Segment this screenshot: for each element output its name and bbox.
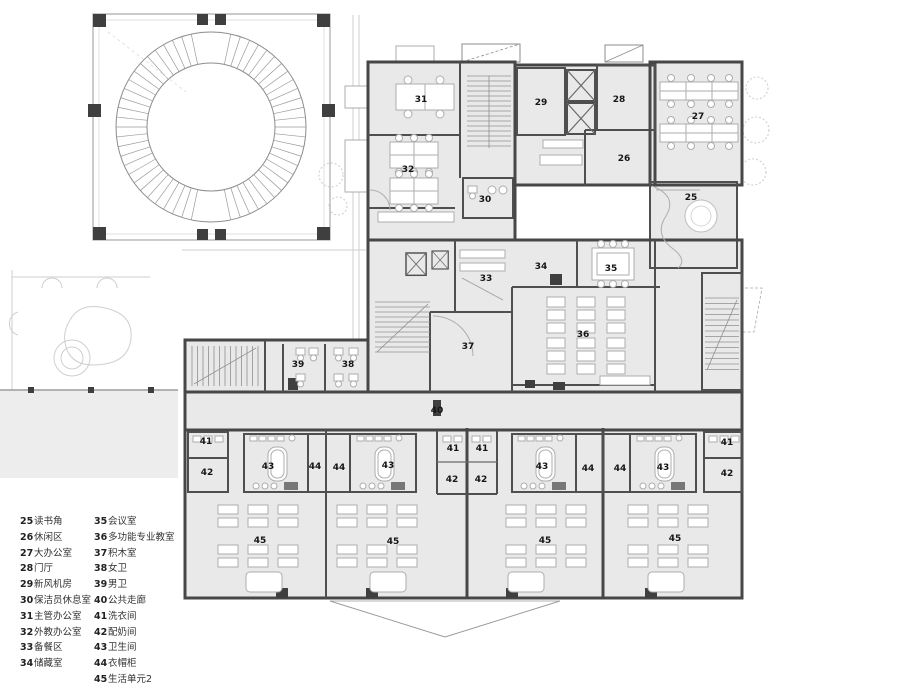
room-label: 39 bbox=[292, 360, 305, 370]
room-label: 29 bbox=[535, 98, 548, 108]
room-label: 45 bbox=[669, 534, 682, 544]
legend-num: 38 bbox=[94, 561, 108, 577]
legend-item: 31主管办公室 bbox=[20, 609, 91, 625]
room-label: 45 bbox=[254, 536, 267, 546]
legend-column-right: 35会议室 36多功能专业教室 37积木室 38女卫 39男卫 40公共走廊 4… bbox=[94, 514, 175, 688]
legend-item: 36多功能专业教室 bbox=[94, 530, 175, 546]
legend-num: 39 bbox=[94, 577, 108, 593]
legend-num: 27 bbox=[20, 546, 34, 562]
legend-item: 42配奶间 bbox=[94, 625, 175, 641]
room-label: 44 bbox=[309, 462, 322, 472]
legend-num: 41 bbox=[94, 609, 108, 625]
legend-num: 28 bbox=[20, 561, 34, 577]
room-label: 40 bbox=[431, 406, 444, 416]
legend-column-left: 25读书角 26休闲区 27大办公室 28门厅 29新风机房 30保洁员休息室 … bbox=[20, 514, 91, 672]
legend-num: 36 bbox=[94, 530, 108, 546]
room-label: 41 bbox=[200, 437, 213, 447]
room-label: 42 bbox=[446, 475, 459, 485]
legend-num: 37 bbox=[94, 546, 108, 562]
legend-item: 30保洁员休息室 bbox=[20, 593, 91, 609]
room-label: 42 bbox=[201, 468, 214, 478]
legend-item: 27大办公室 bbox=[20, 546, 91, 562]
legend-num: 32 bbox=[20, 625, 34, 641]
legend-num: 42 bbox=[94, 625, 108, 641]
room-label: 43 bbox=[536, 462, 549, 472]
legend-item: 37积木室 bbox=[94, 546, 175, 562]
legend-item: 28门厅 bbox=[20, 561, 91, 577]
room-label: 43 bbox=[657, 463, 670, 473]
legend-num: 31 bbox=[20, 609, 34, 625]
room-label: 32 bbox=[402, 165, 415, 175]
room-label: 31 bbox=[415, 95, 428, 105]
legend-label: 主管办公室 bbox=[34, 611, 82, 622]
legend-label: 衣帽柜 bbox=[108, 658, 137, 669]
legend-num: 33 bbox=[20, 640, 34, 656]
room-label: 25 bbox=[685, 193, 698, 203]
room-label: 35 bbox=[605, 264, 618, 274]
legend-item: 45生活单元2 bbox=[94, 672, 175, 688]
room-label: 42 bbox=[721, 469, 734, 479]
legend-num: 43 bbox=[94, 640, 108, 656]
legend-item: 43卫生间 bbox=[94, 640, 175, 656]
room-label: 44 bbox=[614, 464, 627, 474]
ring-structure bbox=[88, 14, 335, 240]
legend-label: 洗衣间 bbox=[108, 611, 137, 622]
legend-item: 41洗衣间 bbox=[94, 609, 175, 625]
legend-label: 男卫 bbox=[108, 579, 127, 590]
legend-num: 34 bbox=[20, 656, 34, 672]
legend-label: 女卫 bbox=[108, 563, 127, 574]
legend-label: 休闲区 bbox=[34, 532, 63, 543]
legend-label: 大办公室 bbox=[34, 548, 72, 559]
legend-item: 38女卫 bbox=[94, 561, 175, 577]
legend-item: 35会议室 bbox=[94, 514, 175, 530]
room-label: 30 bbox=[479, 195, 492, 205]
room-label: 26 bbox=[618, 154, 631, 164]
room-label: 45 bbox=[387, 537, 400, 547]
legend-label: 新风机房 bbox=[34, 579, 72, 590]
legend-item: 33备餐区 bbox=[20, 640, 91, 656]
room-label: 38 bbox=[342, 360, 355, 370]
legend-item: 40公共走廊 bbox=[94, 593, 175, 609]
legend-label: 外教办公室 bbox=[34, 627, 82, 638]
legend-num: 44 bbox=[94, 656, 108, 672]
legend-num: 29 bbox=[20, 577, 34, 593]
room-label: 33 bbox=[480, 274, 493, 284]
legend-label: 生活单元2 bbox=[108, 674, 152, 685]
room-label: 45 bbox=[539, 536, 552, 546]
legend-num: 40 bbox=[94, 593, 108, 609]
legend-item: 26休闲区 bbox=[20, 530, 91, 546]
legend-item: 44衣帽柜 bbox=[94, 656, 175, 672]
legend-label: 会议室 bbox=[108, 516, 137, 527]
legend-item: 25读书角 bbox=[20, 514, 91, 530]
legend-label: 公共走廊 bbox=[108, 595, 146, 606]
legend-label: 积木室 bbox=[108, 548, 137, 559]
legend-label: 保洁员休息室 bbox=[34, 595, 91, 606]
legend-num: 45 bbox=[94, 672, 108, 688]
legend-item: 29新风机房 bbox=[20, 577, 91, 593]
legend-item: 32外教办公室 bbox=[20, 625, 91, 641]
room-label: 44 bbox=[333, 463, 346, 473]
legend-label: 读书角 bbox=[34, 516, 63, 527]
room-label: 34 bbox=[535, 262, 548, 272]
room-label: 43 bbox=[262, 462, 275, 472]
room-label: 27 bbox=[692, 112, 705, 122]
room-label: 42 bbox=[475, 475, 488, 485]
legend-item: 34储藏室 bbox=[20, 656, 91, 672]
room-label: 37 bbox=[462, 342, 475, 352]
legend-item: 39男卫 bbox=[94, 577, 175, 593]
floor-plan-canvas: 31 29 28 27 32 26 30 25 33 34 35 36 37 3… bbox=[0, 0, 910, 700]
legend-label: 储藏室 bbox=[34, 658, 63, 669]
room-label: 41 bbox=[447, 444, 460, 454]
room-label: 44 bbox=[582, 464, 595, 474]
legend-label: 门厅 bbox=[34, 563, 53, 574]
legend-label: 备餐区 bbox=[34, 642, 63, 653]
room-label: 43 bbox=[382, 461, 395, 471]
legend-label: 卫生间 bbox=[108, 642, 137, 653]
legend-num: 30 bbox=[20, 593, 34, 609]
room-label: 28 bbox=[613, 95, 626, 105]
room-label: 41 bbox=[721, 438, 734, 448]
legend-num: 26 bbox=[20, 530, 34, 546]
legend-label: 多功能专业教室 bbox=[108, 532, 175, 543]
legend-num: 35 bbox=[94, 514, 108, 530]
legend-label: 配奶间 bbox=[108, 627, 137, 638]
legend-num: 25 bbox=[20, 514, 34, 530]
room-label: 41 bbox=[476, 444, 489, 454]
room-label: 36 bbox=[577, 330, 590, 340]
